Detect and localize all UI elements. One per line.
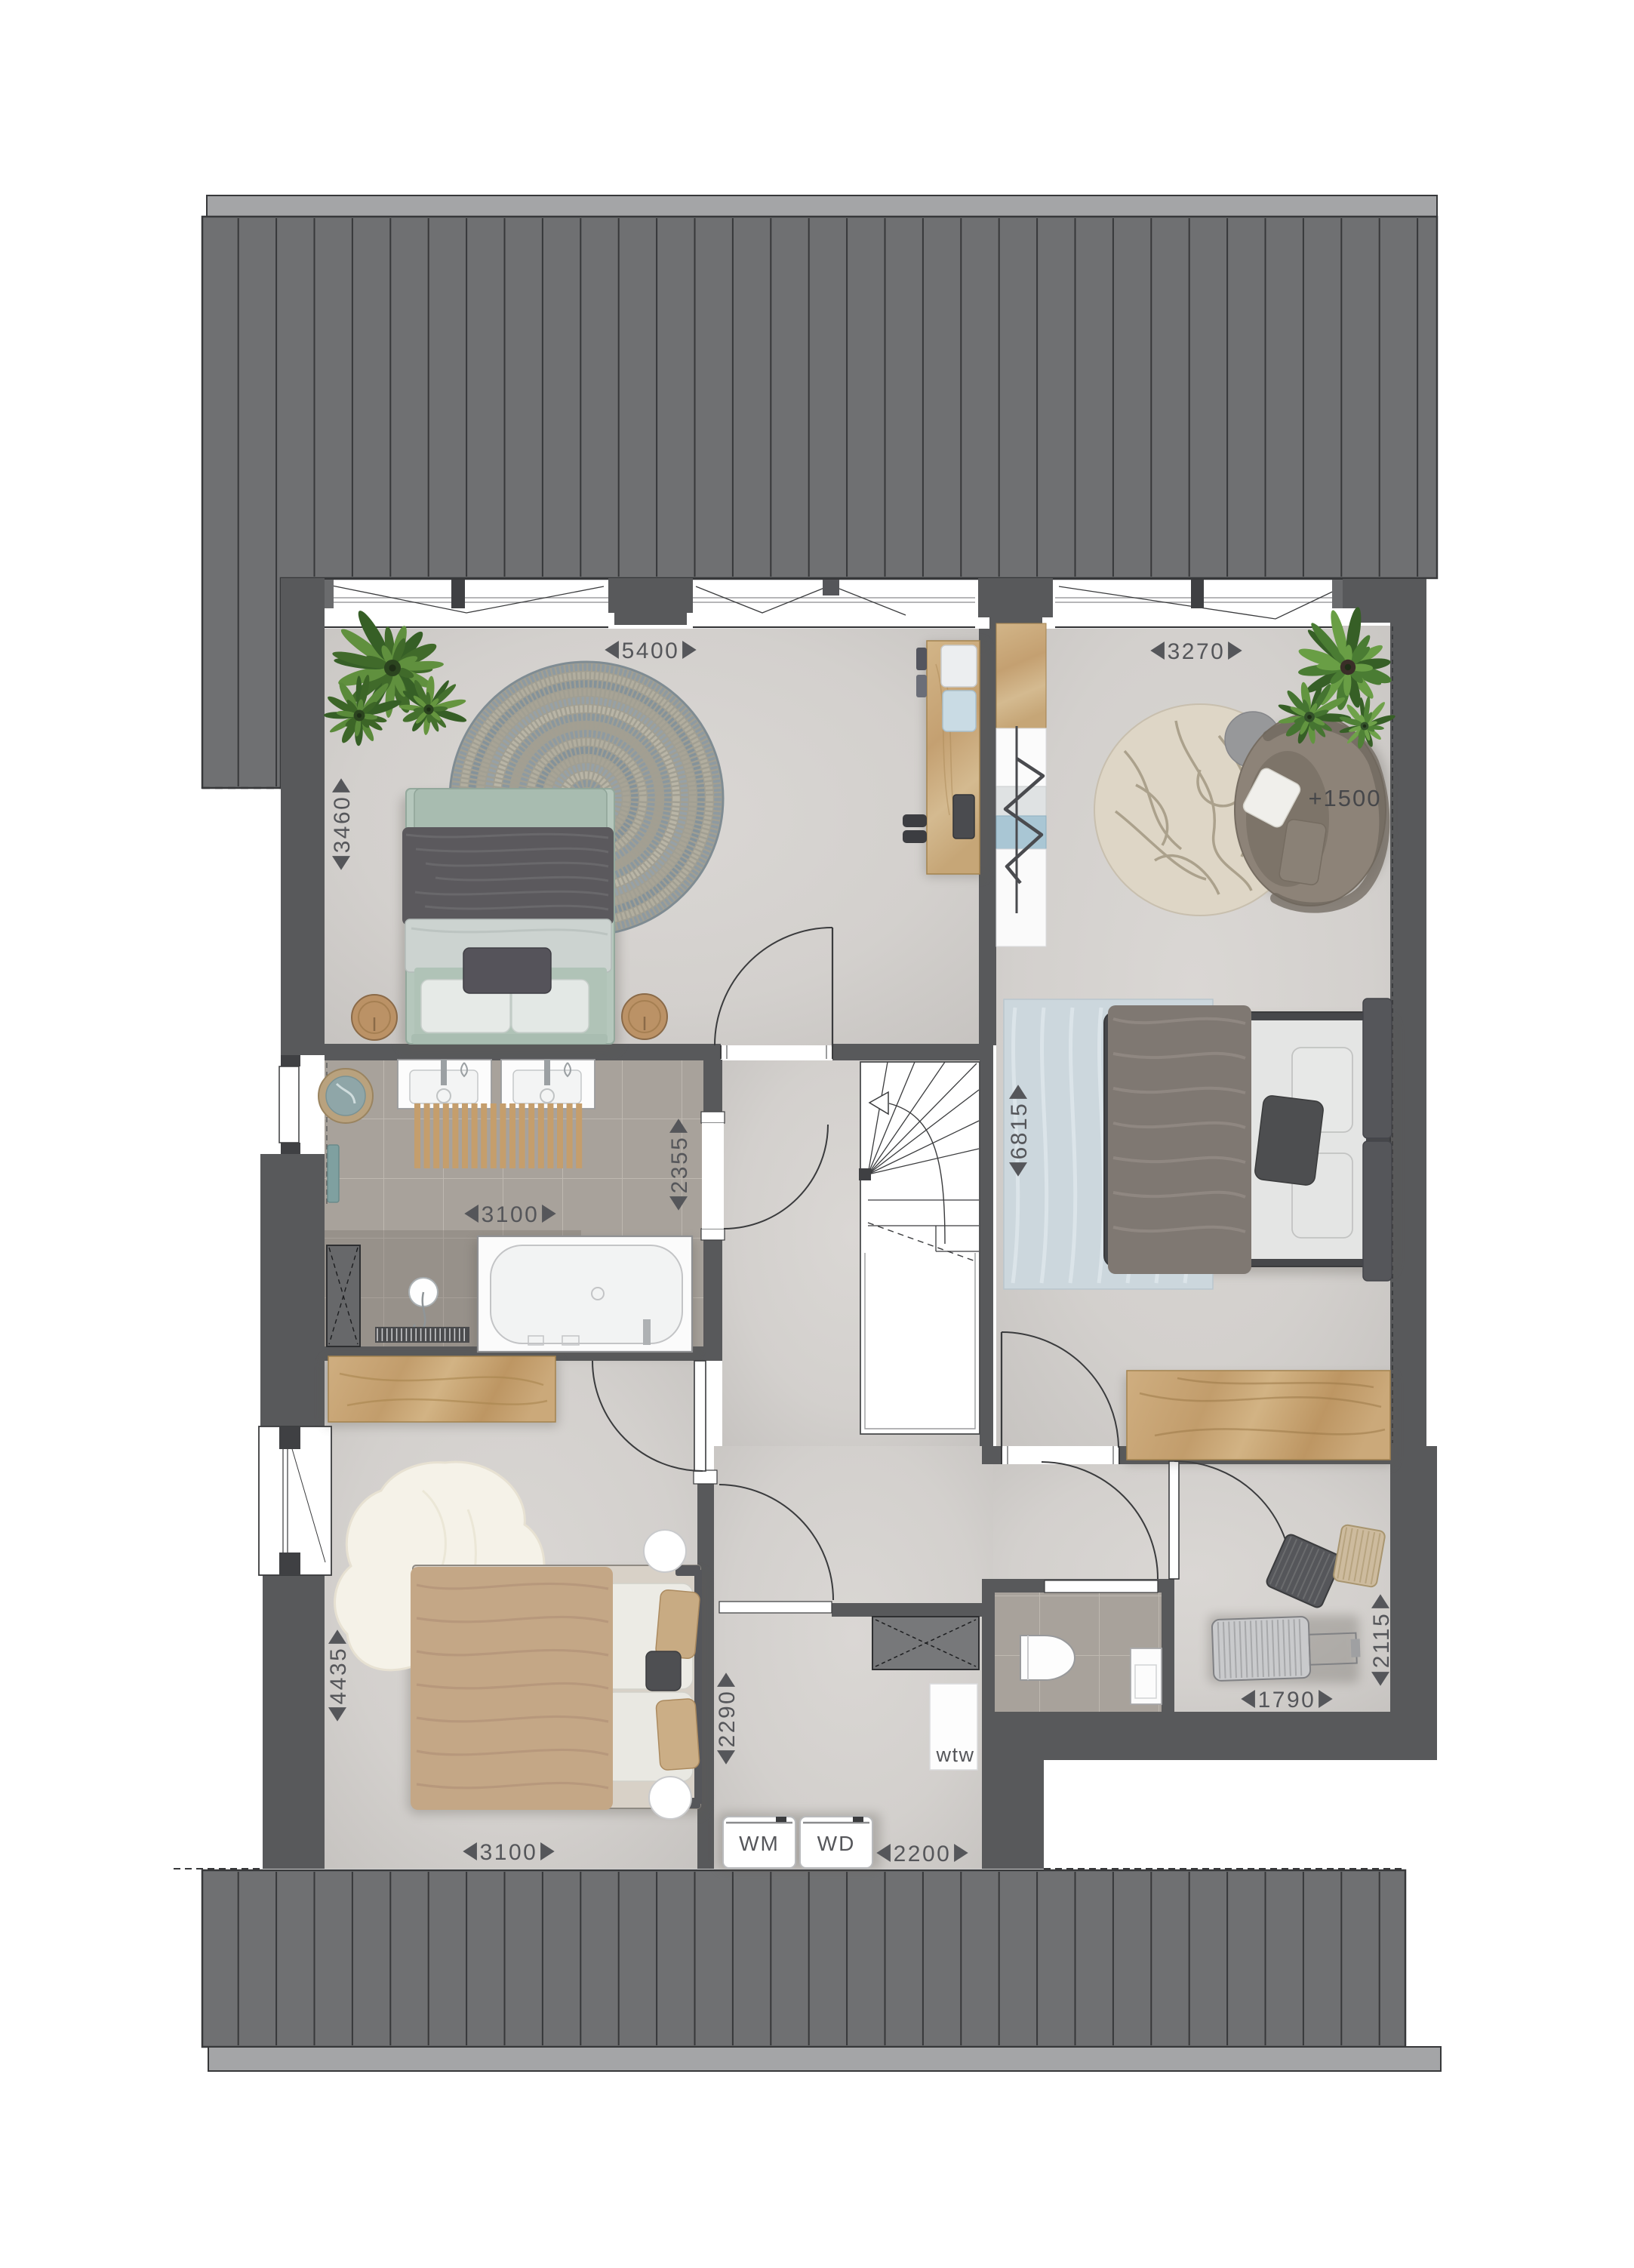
svg-text:+1500: +1500 [1308, 785, 1381, 811]
svg-text:3100: 3100 [480, 1840, 538, 1865]
svg-text:WD: WD [817, 1832, 856, 1855]
svg-text:2290: 2290 [715, 1690, 740, 1748]
svg-text:5400: 5400 [622, 639, 680, 663]
svg-text:2115: 2115 [1369, 1612, 1394, 1669]
svg-text:6815: 6815 [1007, 1102, 1032, 1160]
svg-text:2200: 2200 [894, 1842, 952, 1866]
svg-text:3460: 3460 [330, 795, 355, 854]
svg-text:3100: 3100 [482, 1202, 540, 1227]
svg-text:2355: 2355 [667, 1136, 692, 1194]
svg-text:1790: 1790 [1258, 1688, 1316, 1713]
svg-text:wtw: wtw [936, 1743, 975, 1766]
svg-text:4435: 4435 [326, 1647, 351, 1705]
svg-text:WM: WM [739, 1832, 780, 1855]
svg-text:3270: 3270 [1168, 639, 1226, 664]
